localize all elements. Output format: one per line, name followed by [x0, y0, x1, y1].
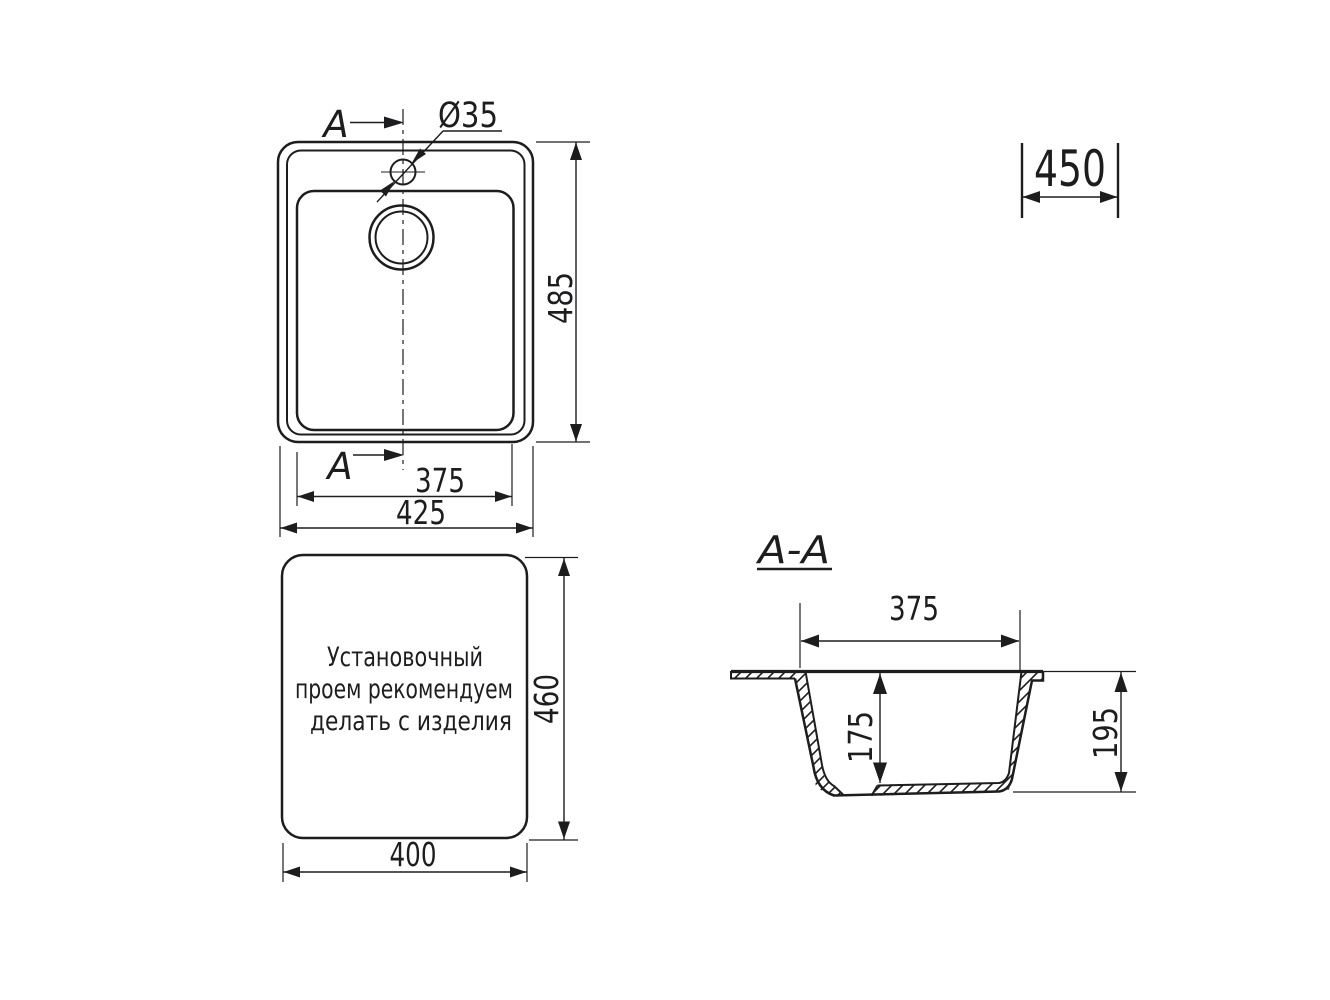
section-letter-bottom: A	[325, 445, 352, 488]
drain-inner-circle	[376, 212, 428, 264]
arrowhead-icon	[284, 867, 301, 878]
section-arrowhead-icon	[384, 117, 404, 129]
bowl-depth-value: 175	[841, 711, 880, 763]
dim-485: 485	[536, 142, 590, 442]
cutout-view: Установочный проем рекомендуем делать с …	[282, 555, 578, 882]
overall-depth-value: 195	[1086, 707, 1125, 759]
dim-depth-value: 485	[541, 272, 580, 324]
floor-and-right-inner-wall	[878, 672, 1022, 786]
arrowhead-icon	[298, 491, 315, 502]
hole-diameter-label: Ø35	[438, 96, 498, 136]
arrowhead-icon	[281, 523, 298, 534]
section-title: A-A	[755, 528, 830, 572]
section-arrowhead-icon	[384, 449, 404, 461]
section-view: A-A 375 175	[570, 528, 1202, 810]
dim-overall-width-value: 425	[396, 493, 446, 532]
leader-arrowhead-icon	[380, 181, 395, 197]
dim-375-section: 375	[800, 589, 1020, 670]
hole-diameter-callout: Ø35	[377, 96, 502, 202]
arrowhead-icon	[873, 674, 887, 695]
cutout-note-line2: проем рекомендуем	[295, 674, 513, 705]
cutout-note-line3: делать с изделия	[310, 706, 512, 737]
sink-outer-outline	[278, 142, 533, 442]
bowl-outline	[297, 191, 514, 430]
dim-175: 175	[841, 673, 887, 783]
sink-rim-outline	[287, 151, 525, 435]
dim-460: 460	[525, 558, 578, 841]
cutout-note-line1: Установочный	[327, 642, 483, 673]
drawing-canvas: A A Ø35 485	[0, 0, 1330, 1000]
cutout-width-value: 400	[390, 835, 437, 874]
section-marker-top: A	[321, 103, 404, 146]
arrowhead-icon	[1115, 673, 1128, 693]
top-view: A A Ø35 485	[278, 96, 590, 537]
arrowhead-icon	[558, 559, 570, 577]
section-letter-top: A	[321, 103, 348, 146]
sink-technical-drawing: A A Ø35 485	[0, 0, 1330, 1000]
opening-width-value: 375	[889, 589, 939, 628]
dim-400: 400	[283, 835, 527, 882]
arrowhead-icon	[558, 822, 570, 840]
drain-outer-circle	[370, 206, 434, 270]
arrowhead-icon	[570, 424, 582, 442]
outer-shell-outline	[795, 672, 1043, 796]
cabinet-width-value: 450	[1034, 140, 1106, 198]
dim-195: 195	[1013, 672, 1136, 793]
arrowhead-icon	[516, 523, 533, 534]
arrowhead-icon	[1115, 772, 1128, 792]
arrowhead-icon	[495, 491, 512, 502]
arrowhead-icon	[570, 143, 582, 161]
arrowhead-icon	[801, 635, 819, 648]
arrowhead-icon	[873, 763, 887, 784]
cutout-height-value: 460	[527, 674, 566, 724]
section-marker-bottom: A	[325, 445, 404, 488]
cabinet-width-dim: 450	[1022, 140, 1118, 218]
arrowhead-icon	[1001, 635, 1019, 648]
arrowhead-icon	[510, 867, 527, 878]
